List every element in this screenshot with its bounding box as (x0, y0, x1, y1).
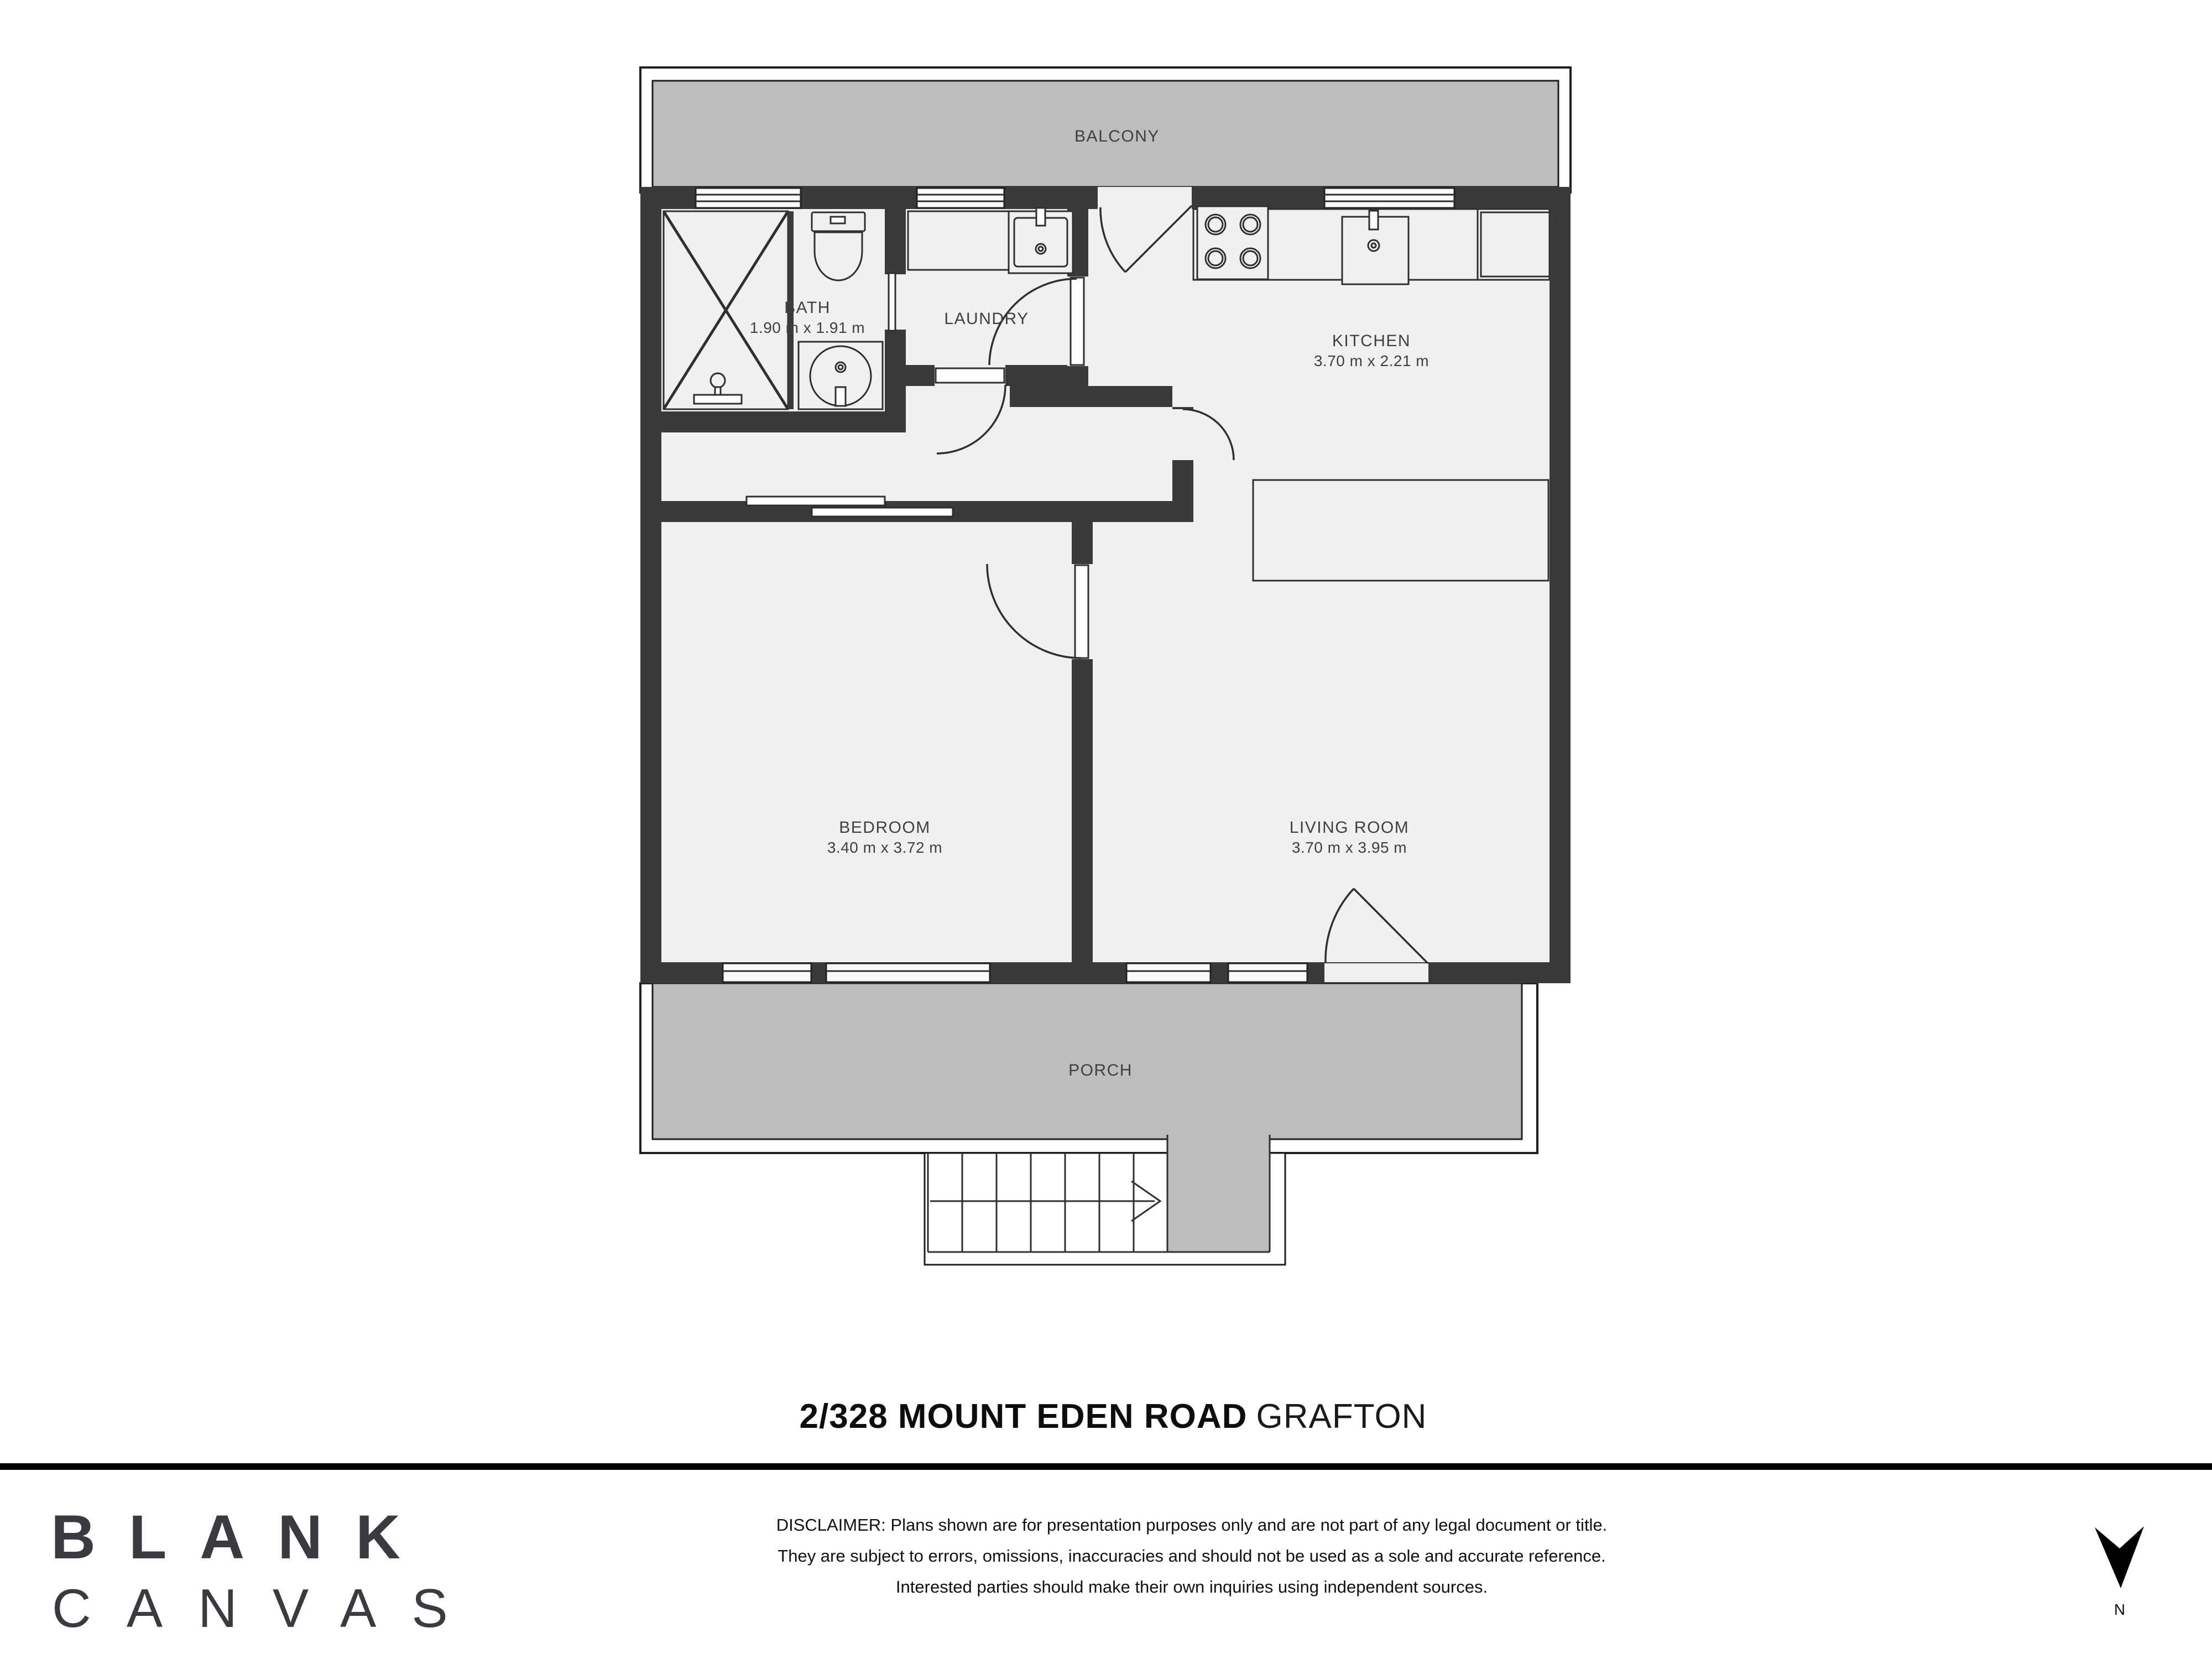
stairs-area (925, 1135, 1285, 1265)
bedroom-label: BEDROOM (839, 818, 931, 837)
unit-interior: BATH 1.90 m x 1.91 m LAUNDRY KITCHEN 3.7… (640, 187, 1571, 983)
window-kitchen (1324, 188, 1454, 208)
title-suburb: GRAFTON (1256, 1397, 1427, 1436)
north-compass: N (2095, 1526, 2144, 1618)
footer-divider (0, 1463, 2212, 1470)
north-label: N (2114, 1601, 2125, 1618)
wall-closet-top (1010, 386, 1172, 407)
walkway (1167, 1135, 1270, 1252)
bath-label: BATH (784, 299, 831, 317)
wall-closet-bottom (1093, 501, 1193, 522)
kitchen-island (1253, 480, 1548, 581)
kitchen-tall-unit (1478, 209, 1550, 280)
balcony-label: BALCONY (1074, 127, 1160, 145)
kitchen-label: KITCHEN (1332, 332, 1411, 350)
bedroom-dims: 3.40 m x 3.72 m (827, 839, 942, 856)
kitchen-dims: 3.70 m x 2.21 m (1314, 352, 1429, 369)
floor-plan-page: BALCONY PORCH (0, 0, 2212, 1659)
logo-line-1: BLANK (51, 1503, 434, 1572)
porch-label: PORCH (1068, 1061, 1133, 1079)
bath-dims: 1.90 m x 1.91 m (750, 319, 865, 336)
title-address: 2/328 MOUNT EDEN ROAD (800, 1397, 1248, 1436)
laundry-fixtures (908, 208, 1073, 273)
page-title: 2/328 MOUNT EDEN ROADGRAFTON (800, 1397, 1427, 1436)
window-living-2 (1228, 963, 1307, 982)
floor-plan-canvas: BALCONY PORCH (0, 0, 2212, 1659)
stove-cooktop (1197, 206, 1268, 279)
window-laundry (917, 188, 1004, 208)
vanity-basin (799, 342, 883, 409)
living-room-label: LIVING ROOM (1290, 818, 1410, 837)
wall-bath-bottom (661, 411, 906, 432)
window-bedroom-2 (826, 963, 990, 982)
kitchen-sink (1342, 211, 1408, 284)
living-room-dims: 3.70 m x 3.95 m (1292, 839, 1407, 856)
logo-line-2: CANVAS (52, 1578, 483, 1639)
logo: BLANK CANVAS (51, 1503, 483, 1639)
shower (664, 211, 794, 409)
laundry-counter (908, 211, 1009, 270)
laundry-label: LAUNDRY (944, 310, 1029, 328)
north-arrow-icon (2095, 1526, 2144, 1588)
window-living-1 (1126, 963, 1211, 982)
disclaimer-line-3: Interested parties should make their own… (896, 1577, 1488, 1597)
door-bath-slider (885, 273, 906, 331)
balcony-area: BALCONY (640, 67, 1571, 192)
window-bedroom-1 (723, 963, 811, 982)
disclaimer-line-2: They are subject to errors, omissions, i… (778, 1546, 1605, 1566)
toilet (812, 212, 865, 280)
plan-title: 2/328 MOUNT EDEN ROADGRAFTON (800, 1397, 1427, 1436)
window-bath (696, 188, 801, 208)
disclaimer-block: DISCLAIMER: Plans shown are for presenta… (776, 1515, 1608, 1597)
porch-area: PORCH (640, 983, 1537, 1153)
disclaimer-line-1: DISCLAIMER: Plans shown are for presenta… (776, 1515, 1608, 1535)
laundry-tub (1009, 208, 1073, 273)
